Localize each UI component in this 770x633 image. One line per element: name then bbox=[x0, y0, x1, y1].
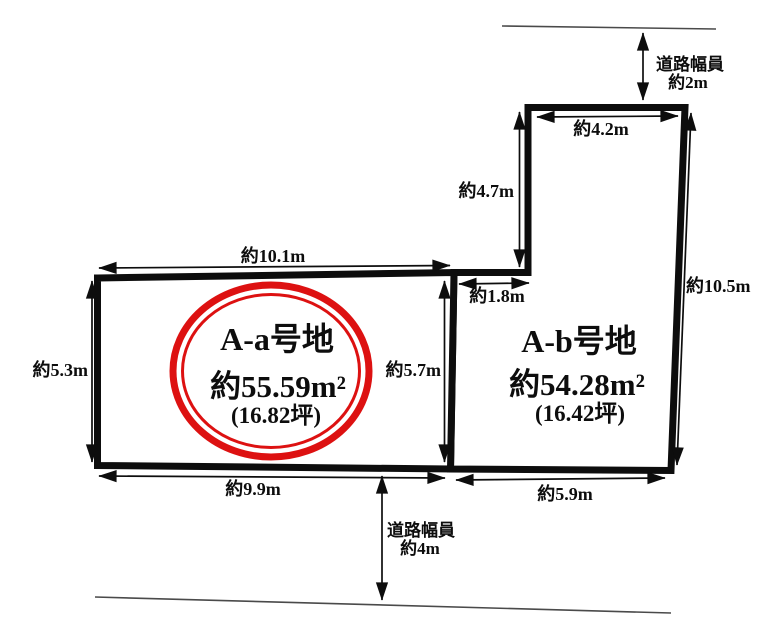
parcel-b-name: A-b号地 bbox=[521, 323, 637, 359]
parcel-a-name: A-a号地 bbox=[220, 321, 334, 357]
dim-arrow-b-step bbox=[459, 283, 529, 284]
bottom-road-label-line1: 道路幅員 bbox=[387, 520, 455, 540]
dim-label-b-upper-left: 約4.7m bbox=[459, 180, 515, 201]
dim-arrow-b-bottom bbox=[456, 478, 665, 480]
parcel-b-tsubo: (16.42坪) bbox=[535, 401, 625, 426]
parcel-b-area: 約54.28m² bbox=[509, 367, 645, 402]
bottom-road-label-line2: 約4m bbox=[400, 538, 440, 558]
top-road-line bbox=[502, 26, 716, 29]
dim-arrow-a-bottom bbox=[99, 476, 445, 478]
dim-arrow-b-top bbox=[537, 116, 678, 117]
top-road-label-line1: 道路幅員 bbox=[656, 54, 724, 74]
dim-label-b-bottom: 約5.9m bbox=[537, 483, 593, 504]
dim-label-b-step: 約1.8m bbox=[469, 285, 525, 306]
land-plot-diagram: 約10.1m 約5.3m 約5.7m 約9.9m 約4.2m 約4.7m 約10… bbox=[0, 0, 770, 633]
dim-label-b-right: 約10.5m bbox=[686, 275, 751, 296]
dim-label-a-top: 約10.1m bbox=[241, 245, 306, 266]
top-road-label-line2: 約2m bbox=[668, 72, 708, 92]
parcel-a-tsubo: (16.82坪) bbox=[231, 403, 321, 428]
parcel-a-area: 約55.59m² bbox=[210, 369, 346, 404]
dim-label-a-right: 約5.7m bbox=[386, 359, 442, 380]
bottom-road-line bbox=[95, 597, 671, 613]
dim-label-a-left: 約5.3m bbox=[33, 359, 89, 380]
dim-label-a-bottom: 約9.9m bbox=[225, 478, 281, 499]
plot-svg: 約10.1m 約5.3m 約5.7m 約9.9m 約4.2m 約4.7m 約10… bbox=[0, 0, 770, 633]
dim-label-b-top: 約4.2m bbox=[573, 118, 629, 139]
